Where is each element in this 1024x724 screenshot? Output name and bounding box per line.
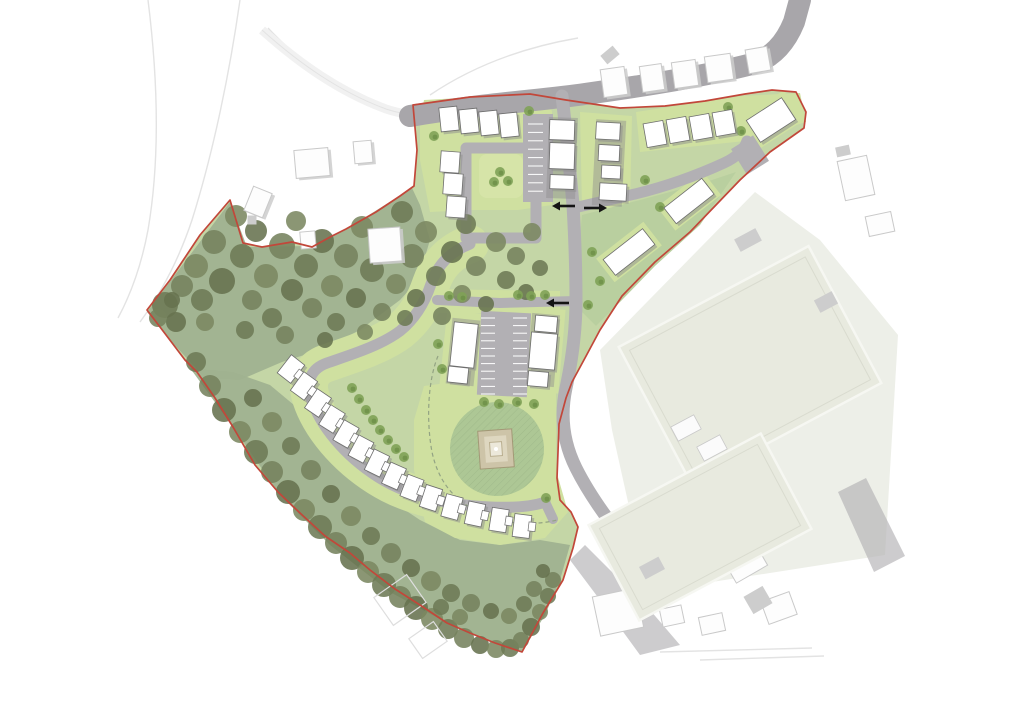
context-building <box>698 613 725 636</box>
context-house <box>745 46 771 73</box>
house-porch <box>481 510 490 520</box>
street-tree-core <box>659 206 664 211</box>
context-house <box>600 66 628 97</box>
woodland-tree <box>373 303 391 321</box>
street-tree-core <box>533 403 538 408</box>
house-porch <box>528 522 536 532</box>
proposed-building <box>443 173 463 195</box>
woodland-tree <box>497 271 515 289</box>
street-tree-core <box>544 294 549 299</box>
woodland-tree <box>322 485 340 503</box>
proposed-building <box>527 371 548 388</box>
proposed-building <box>596 122 621 140</box>
woodland-tree <box>357 324 373 340</box>
woodland-tree <box>262 308 282 328</box>
house-porch <box>505 516 513 526</box>
woodland-tree <box>282 437 300 455</box>
context-building-gray <box>248 216 257 225</box>
site-plan <box>0 0 1024 724</box>
woodland-tree <box>483 603 499 619</box>
woodland-tree <box>244 389 262 407</box>
woodland-tree <box>327 313 345 331</box>
woodland-tree <box>191 289 213 311</box>
proposed-building <box>534 315 557 333</box>
woodland-tree <box>186 352 206 372</box>
woodland-tree <box>381 543 401 563</box>
context-house <box>353 140 373 163</box>
context-house <box>704 53 733 82</box>
street-tree-core <box>365 409 370 414</box>
woodland-tree <box>294 254 318 278</box>
context-road-line <box>700 656 824 660</box>
monument-center <box>494 447 498 451</box>
street-tree-core <box>498 403 503 408</box>
woodland-tree <box>486 232 506 252</box>
woodland-tree <box>386 274 406 294</box>
context-road-line <box>660 648 812 652</box>
woodland-tree <box>426 266 446 286</box>
woodland-tree <box>452 609 468 625</box>
woodland-tree <box>184 254 208 278</box>
woodland-tree <box>212 398 236 422</box>
street-tree-core <box>403 456 408 461</box>
woodland-tree <box>433 599 449 615</box>
proposed-building <box>459 108 479 134</box>
site-plan-canvas <box>0 0 1024 724</box>
proposed-building <box>549 120 575 141</box>
woodland-tree <box>526 581 542 597</box>
woodland-tree <box>230 244 254 268</box>
street-tree-core <box>351 387 356 392</box>
context-building <box>837 155 875 200</box>
street-tree-core <box>644 179 649 184</box>
proposed-building <box>712 109 736 136</box>
woodland-tree <box>301 460 321 480</box>
woodland-tree <box>462 594 480 612</box>
street-tree-core <box>483 401 488 406</box>
street-tree-core <box>499 171 504 176</box>
woodland-tree <box>254 264 278 288</box>
context-road-line <box>430 38 578 95</box>
proposed-building <box>598 144 620 161</box>
woodland-tree <box>433 307 451 325</box>
proposed-building <box>499 112 519 138</box>
street-tree-core <box>545 497 550 502</box>
woodland-tree <box>362 527 380 545</box>
proposed-building <box>666 116 690 143</box>
street-tree-core <box>372 419 377 424</box>
woodland-tree <box>196 313 214 331</box>
woodland-tree <box>276 326 294 344</box>
woodland-tree <box>302 298 322 318</box>
woodland-tree <box>236 321 254 339</box>
woodland-tree <box>402 559 420 577</box>
context-house <box>368 227 402 263</box>
woodland-tree <box>261 461 283 483</box>
street-tree-core <box>591 251 596 256</box>
street-tree-core <box>493 181 498 186</box>
context-lane-edge <box>262 30 412 115</box>
woodland-tree <box>442 584 460 602</box>
street-tree-core <box>358 398 363 403</box>
proposed-building <box>450 322 478 368</box>
street-tree-core <box>379 429 384 434</box>
street-tree-core <box>448 295 453 300</box>
woodland-tree <box>415 221 437 243</box>
context-house <box>671 59 698 88</box>
woodland-tree <box>281 279 303 301</box>
street-tree-core <box>530 295 535 300</box>
street-tree-core <box>461 296 466 301</box>
proposed-building <box>550 175 574 190</box>
woodland-tree <box>441 241 463 263</box>
street-tree-core <box>387 439 392 444</box>
woodland-tree <box>334 244 358 268</box>
proposed-building <box>479 110 499 136</box>
woodland-tree <box>262 412 282 432</box>
woodland-tree <box>164 292 180 308</box>
street-tree-core <box>395 448 400 453</box>
woodland-tree <box>209 268 235 294</box>
woodland-tree <box>242 290 262 310</box>
proposed-building <box>446 196 466 218</box>
woodland-tree <box>225 205 247 227</box>
proposed-building <box>549 143 575 170</box>
proposed-building <box>601 165 621 179</box>
woodland-tree <box>507 247 525 265</box>
street-tree-core <box>599 280 604 285</box>
context-lane <box>262 30 412 115</box>
context-road-line <box>118 0 156 318</box>
woodland-tree <box>407 289 425 307</box>
woodland-tree <box>536 564 550 578</box>
street-tree-core <box>516 401 521 406</box>
woodland-tree <box>421 571 441 591</box>
street-tree-core <box>441 368 446 373</box>
proposed-building <box>528 332 557 370</box>
context-house <box>639 64 664 93</box>
street-tree-core <box>740 130 745 135</box>
proposed-building <box>440 151 460 173</box>
woodland-tree <box>478 296 494 312</box>
woodland-tree <box>346 288 366 308</box>
street-tree-core <box>587 304 592 309</box>
context-road-line <box>268 28 384 108</box>
street-tree-core <box>528 110 533 115</box>
woodland-tree <box>501 608 517 624</box>
street-tree-core <box>507 180 512 185</box>
woodland-tree <box>397 310 413 326</box>
woodland-tree <box>286 211 306 231</box>
woodland-tree <box>532 260 548 276</box>
street-tree-core <box>517 294 522 299</box>
proposed-building <box>689 113 713 140</box>
woodland-tree <box>523 223 541 241</box>
woodland-tree <box>466 256 486 276</box>
woodland-tree <box>202 230 226 254</box>
context-house <box>294 148 330 179</box>
proposed-building <box>447 366 469 384</box>
woodland-tree <box>321 275 343 297</box>
context-building-gray <box>600 46 619 65</box>
parking-court <box>477 311 531 398</box>
context-building-gray <box>835 145 851 158</box>
proposed-building <box>643 120 667 147</box>
woodland-tree <box>166 312 186 332</box>
woodland-tree <box>317 332 333 348</box>
street-tree-core <box>433 135 438 140</box>
proposed-building <box>439 106 459 132</box>
woodland-tree <box>341 506 361 526</box>
context-building <box>865 212 895 237</box>
woodland-tree <box>391 201 413 223</box>
woodland-tree <box>516 596 532 612</box>
woodland-tree <box>522 618 540 636</box>
street-tree-core <box>437 343 442 348</box>
proposed-building <box>599 183 627 201</box>
